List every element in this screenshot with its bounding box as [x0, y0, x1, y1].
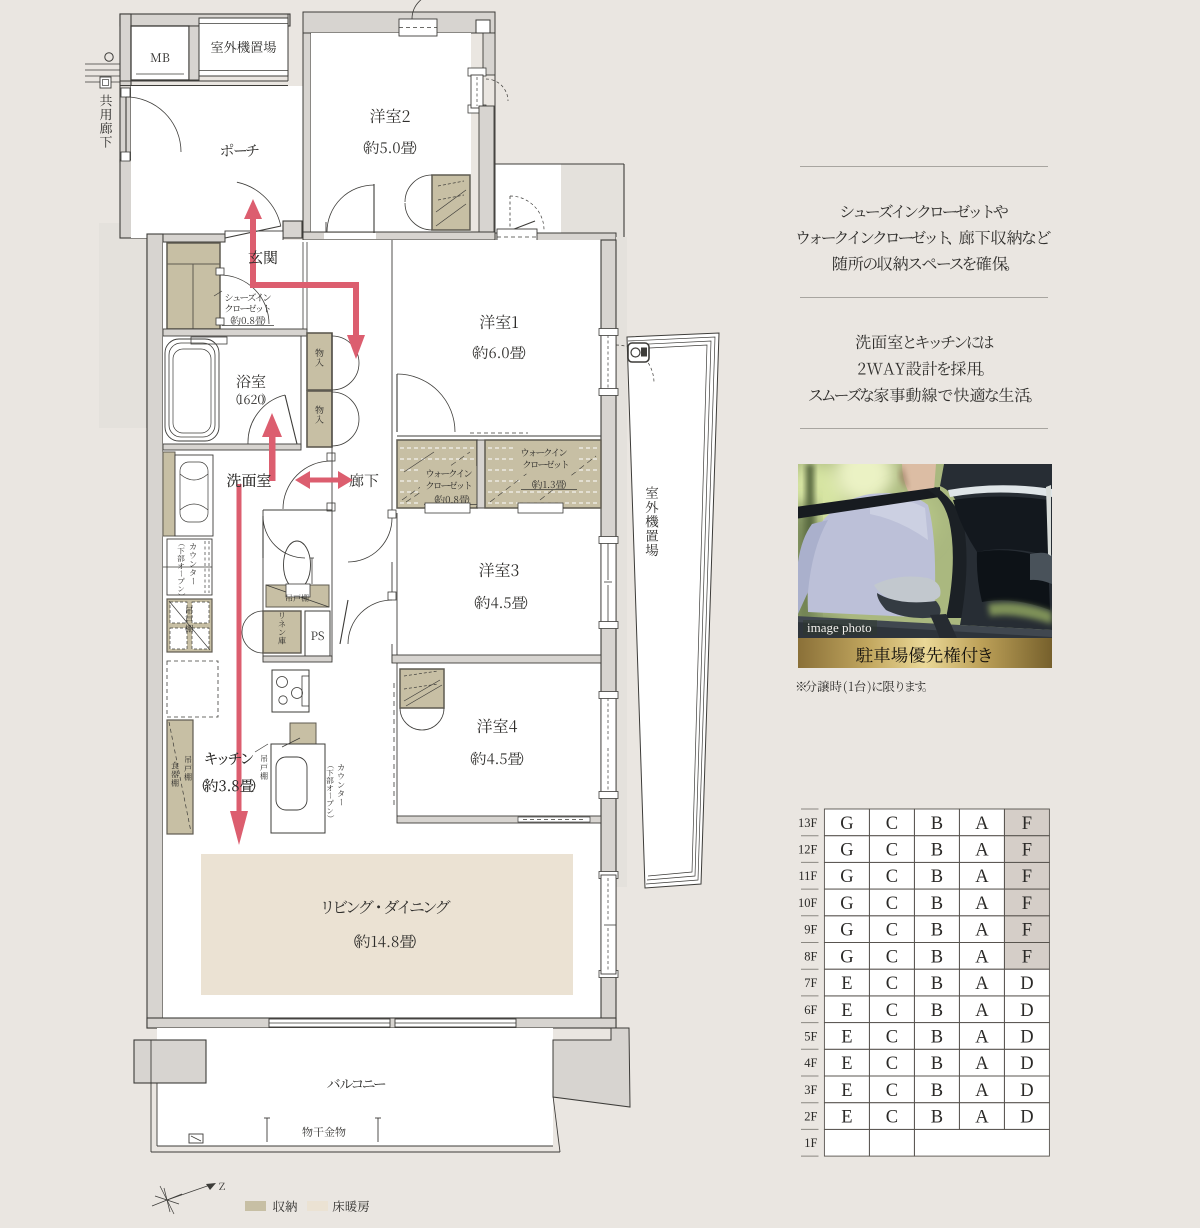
svg-text:D: D — [1020, 974, 1033, 994]
svg-text:F: F — [1022, 867, 1032, 887]
svg-text:G: G — [840, 947, 853, 967]
svg-text:C: C — [886, 921, 898, 941]
svg-text:F: F — [1022, 921, 1032, 941]
svg-text:G: G — [840, 814, 853, 834]
svg-text:F: F — [1022, 814, 1032, 834]
svg-text:7F: 7F — [804, 976, 817, 990]
svg-text:B: B — [931, 1081, 943, 1101]
svg-text:F: F — [1022, 894, 1032, 914]
svg-text:9F: 9F — [804, 923, 817, 937]
svg-text:6F: 6F — [804, 1003, 817, 1017]
svg-text:E: E — [841, 1001, 852, 1021]
svg-text:G: G — [840, 841, 853, 861]
svg-text:E: E — [841, 974, 852, 994]
svg-text:D: D — [1020, 1081, 1033, 1101]
svg-text:B: B — [931, 1028, 943, 1048]
svg-text:B: B — [931, 814, 943, 834]
svg-text:E: E — [841, 1081, 852, 1101]
svg-text:B: B — [931, 974, 943, 994]
svg-text:C: C — [886, 841, 898, 861]
svg-text:G: G — [840, 894, 853, 914]
svg-text:C: C — [886, 1108, 898, 1128]
svg-text:C: C — [886, 867, 898, 887]
svg-text:E: E — [841, 1054, 852, 1074]
svg-text:A: A — [975, 947, 989, 967]
svg-text:G: G — [840, 867, 853, 887]
svg-text:12F: 12F — [798, 843, 818, 857]
svg-text:B: B — [931, 894, 943, 914]
svg-text:E: E — [841, 1028, 852, 1048]
svg-text:C: C — [886, 1028, 898, 1048]
svg-text:G: G — [840, 921, 853, 941]
svg-text:A: A — [975, 1001, 989, 1021]
svg-text:image photo: image photo — [807, 620, 872, 635]
svg-text:A: A — [975, 1108, 989, 1128]
svg-text:A: A — [975, 1081, 989, 1101]
svg-text:B: B — [931, 867, 943, 887]
svg-text:4F: 4F — [804, 1056, 817, 1070]
svg-text:C: C — [886, 974, 898, 994]
svg-text:C: C — [886, 1001, 898, 1021]
svg-text:D: D — [1020, 1028, 1033, 1048]
svg-text:A: A — [975, 974, 989, 994]
svg-text:10F: 10F — [798, 896, 818, 910]
svg-text:C: C — [886, 1081, 898, 1101]
svg-text:A: A — [975, 894, 989, 914]
svg-text:D: D — [1020, 1001, 1033, 1021]
svg-text:A: A — [975, 1054, 989, 1074]
svg-text:2F: 2F — [804, 1110, 817, 1124]
svg-text:11F: 11F — [798, 869, 817, 883]
svg-text:B: B — [931, 1054, 943, 1074]
svg-text:C: C — [886, 814, 898, 834]
svg-text:A: A — [975, 1028, 989, 1048]
svg-text:D: D — [1020, 1054, 1033, 1074]
svg-text:E: E — [841, 1108, 852, 1128]
svg-text:A: A — [975, 841, 989, 861]
svg-text:8F: 8F — [804, 949, 817, 963]
svg-text:13F: 13F — [798, 816, 818, 830]
svg-text:3F: 3F — [804, 1083, 817, 1097]
svg-text:C: C — [886, 1054, 898, 1074]
svg-text:F: F — [1022, 947, 1032, 967]
svg-text:D: D — [1020, 1108, 1033, 1128]
svg-text:5F: 5F — [804, 1030, 817, 1044]
svg-text:A: A — [975, 814, 989, 834]
svg-text:B: B — [931, 841, 943, 861]
svg-text:1F: 1F — [804, 1136, 817, 1150]
svg-text:A: A — [975, 921, 989, 941]
svg-text:B: B — [931, 1001, 943, 1021]
svg-text:B: B — [931, 1108, 943, 1128]
svg-text:B: B — [931, 947, 943, 967]
svg-text:C: C — [886, 894, 898, 914]
svg-text:A: A — [975, 867, 989, 887]
svg-text:B: B — [931, 921, 943, 941]
svg-text:C: C — [886, 947, 898, 967]
svg-text:F: F — [1022, 841, 1032, 861]
